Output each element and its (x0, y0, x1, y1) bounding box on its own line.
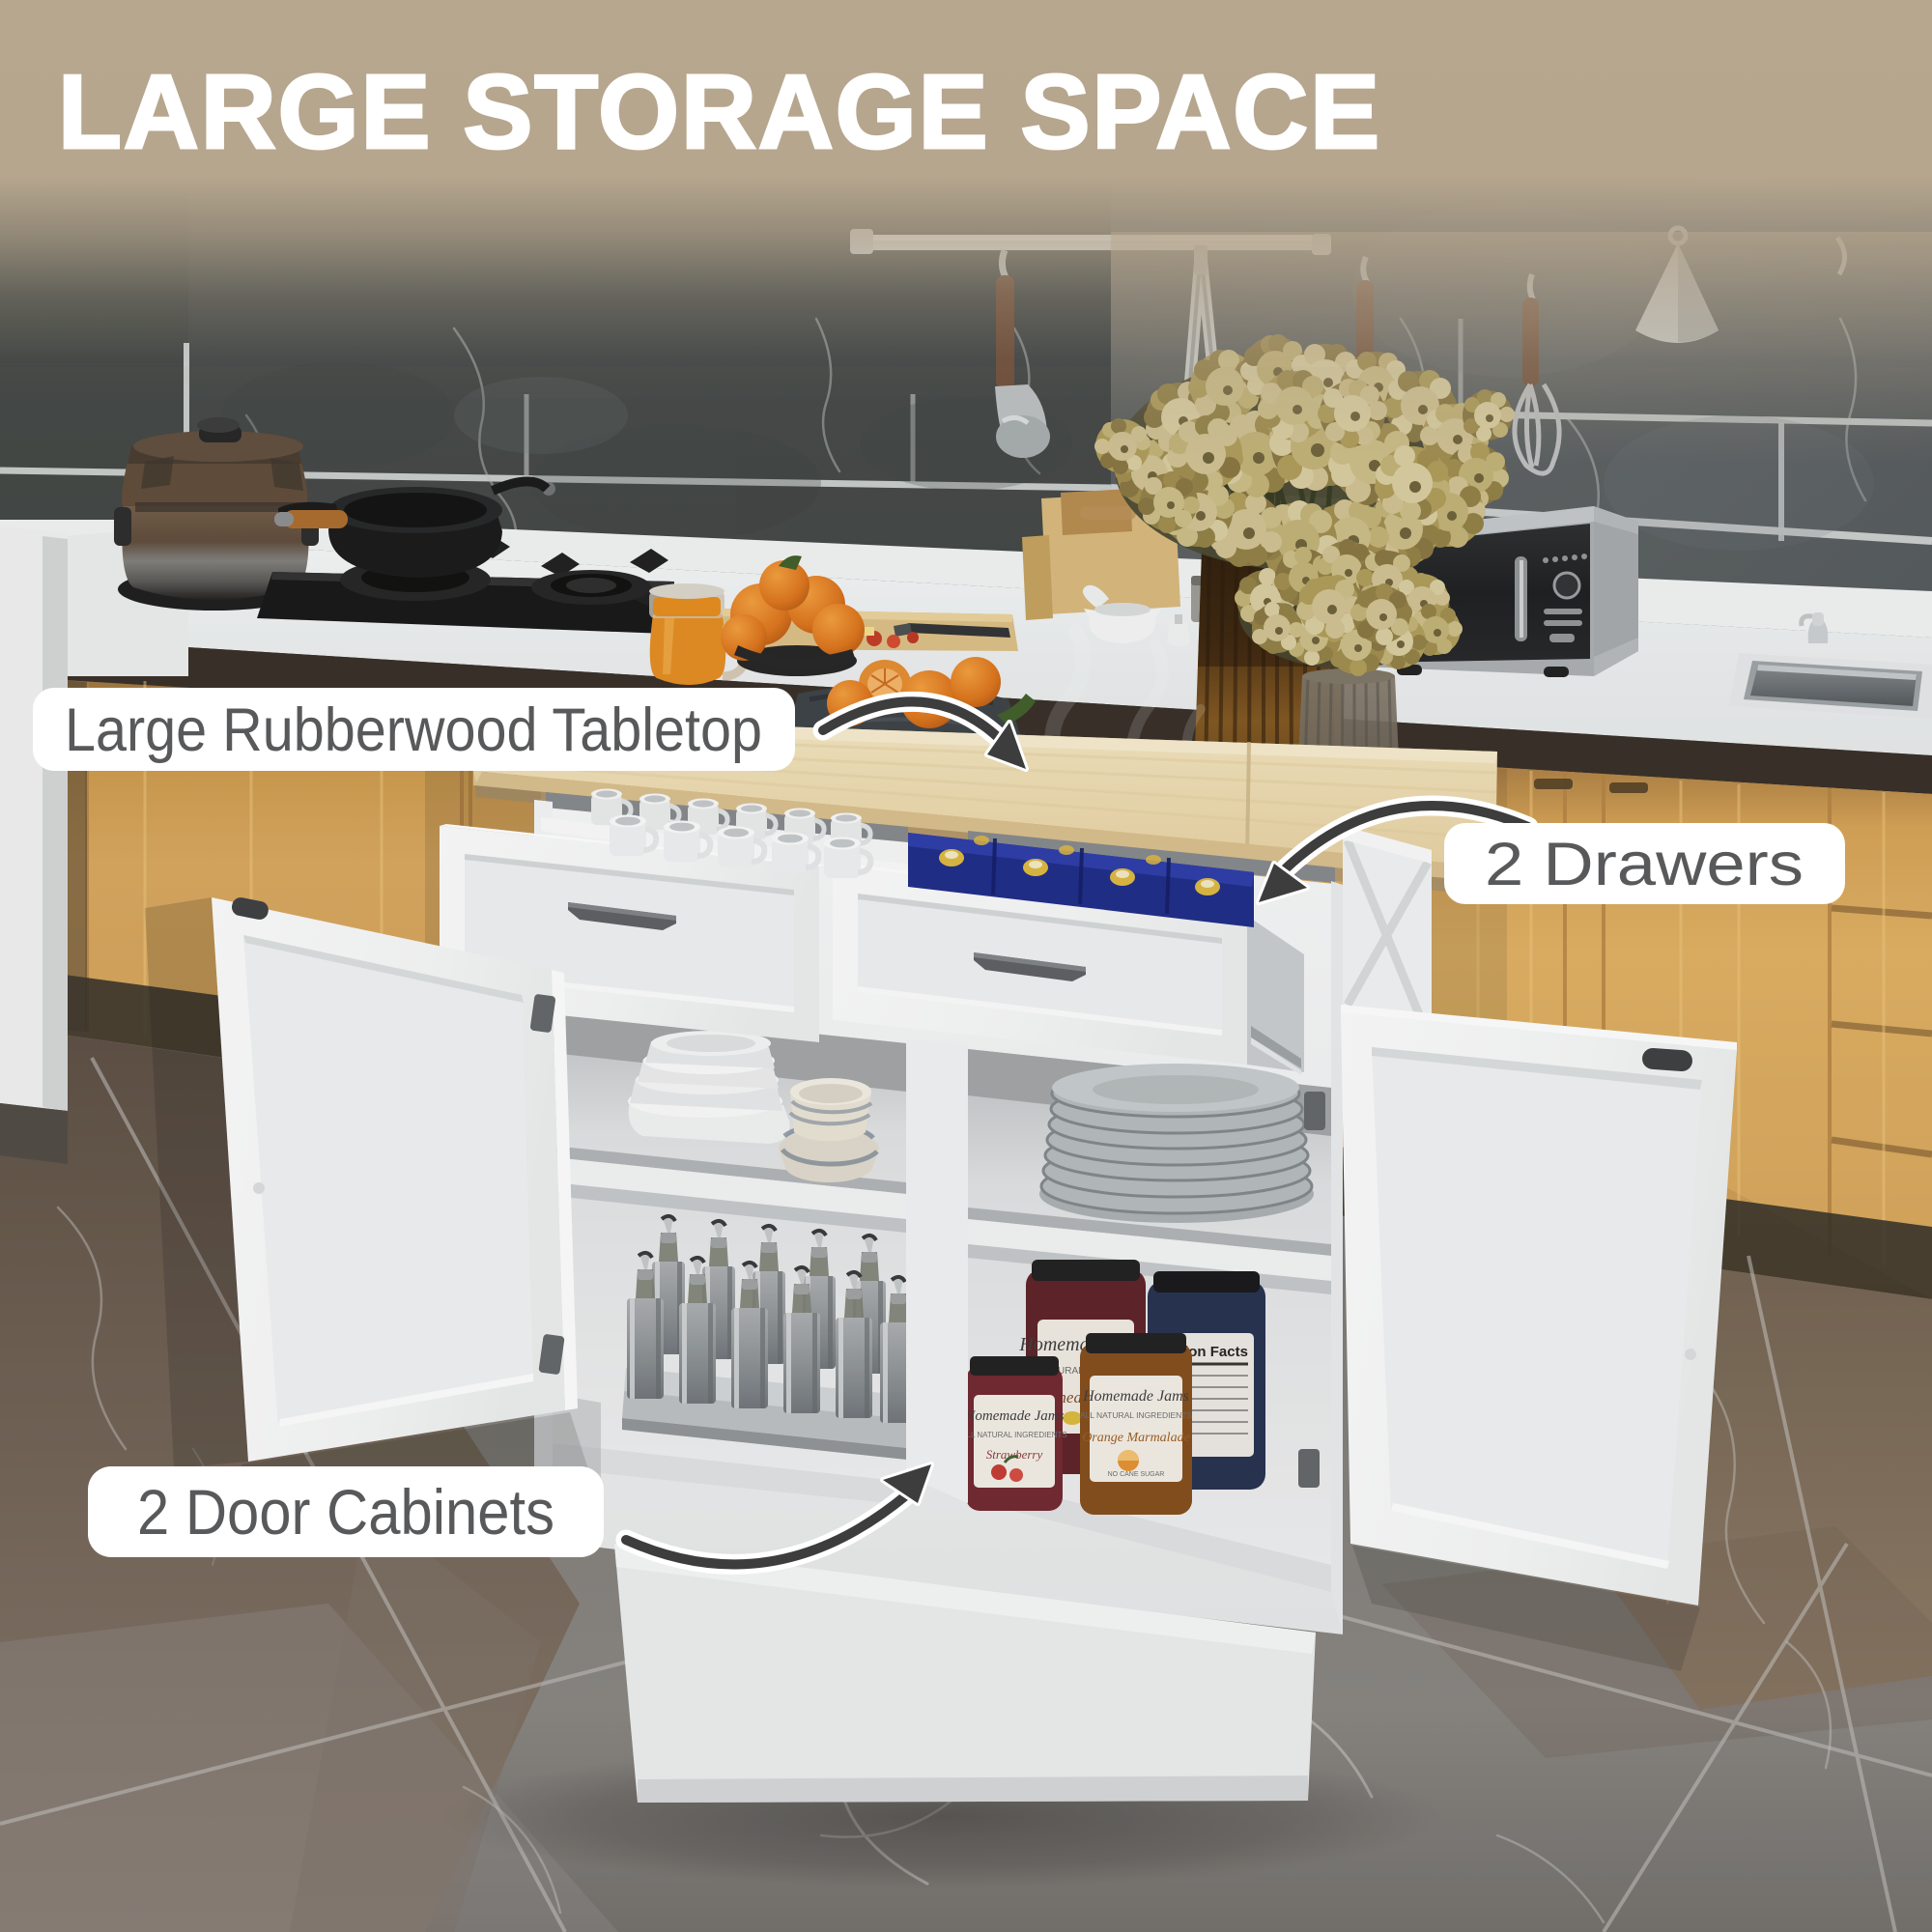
svg-text:LARGE STORAGE SPACE: LARGE STORAGE SPACE (58, 53, 1381, 171)
svg-text:2 Door Cabinets: 2 Door Cabinets (137, 1476, 554, 1548)
svg-text:2 Drawers: 2 Drawers (1485, 831, 1804, 898)
svg-text:Large Rubberwood Tabletop: Large Rubberwood Tabletop (65, 696, 762, 764)
